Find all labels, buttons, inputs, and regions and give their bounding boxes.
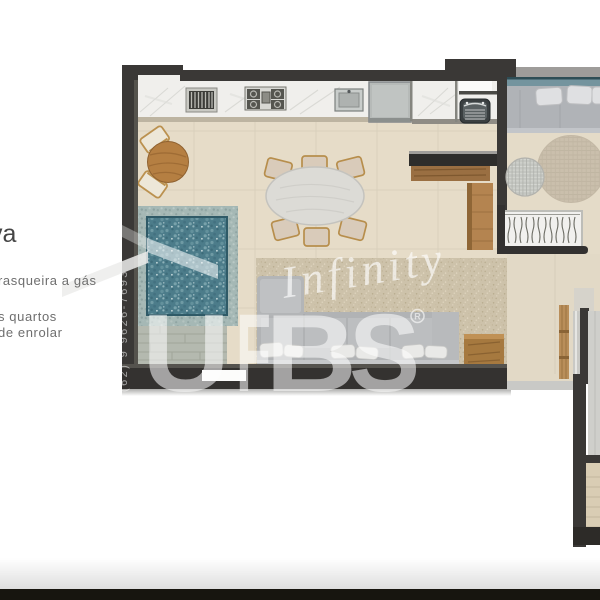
svg-text:R: R: [414, 312, 421, 322]
svg-text:rasqueira a gás: rasqueira a gás: [0, 273, 97, 288]
svg-text:va: va: [0, 220, 17, 248]
svg-text:(62) 9 9626-7693: (62) 9 9626-7693: [118, 269, 130, 392]
svg-text:U: U: [142, 292, 230, 415]
svg-text:de enrolar: de enrolar: [0, 325, 63, 340]
svg-text:S: S: [349, 292, 420, 415]
svg-text:B: B: [265, 292, 357, 415]
svg-text:s quartos: s quartos: [0, 309, 57, 324]
